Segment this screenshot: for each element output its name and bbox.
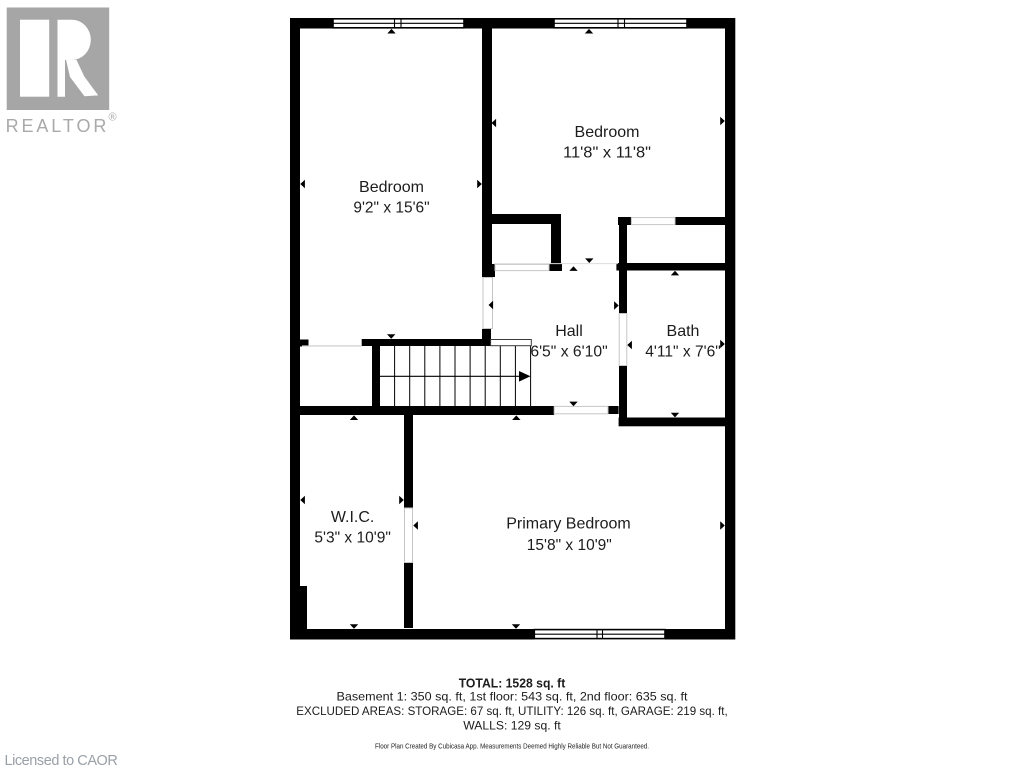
svg-text:Hall: Hall (555, 323, 583, 340)
svg-text:Licensed to CAOR: Licensed to CAOR (5, 753, 118, 768)
svg-text:Primary Bedroom: Primary Bedroom (506, 516, 630, 533)
svg-text:W.I.C.: W.I.C. (331, 509, 375, 526)
svg-text:4'11" x 7'6": 4'11" x 7'6" (645, 343, 721, 360)
svg-text:Basement 1: 350 sq. ft, 1st fl: Basement 1: 350 sq. ft, 1st floor: 543 s… (337, 690, 689, 704)
svg-text:WALLS: 129 sq. ft: WALLS: 129 sq. ft (463, 718, 561, 732)
svg-text:6'5" x 6'10": 6'5" x 6'10" (530, 343, 607, 360)
svg-text:Floor Plan Created By Cubicasa: Floor Plan Created By Cubicasa App. Meas… (375, 742, 649, 751)
svg-text:9'2" x 15'6": 9'2" x 15'6" (353, 200, 429, 217)
svg-text:11'8" x 11'8": 11'8" x 11'8" (563, 145, 651, 162)
svg-text:Bedroom: Bedroom (359, 179, 424, 196)
svg-text:EXCLUDED AREAS: STORAGE: 67 sq: EXCLUDED AREAS: STORAGE: 67 sq. ft, UTIL… (296, 704, 727, 718)
svg-text:Bedroom: Bedroom (575, 124, 640, 141)
svg-text:Bath: Bath (667, 323, 700, 340)
svg-text:REALTOR: REALTOR (6, 116, 110, 136)
svg-text:15'8" x 10'9": 15'8" x 10'9" (527, 537, 612, 554)
svg-text:5'3" x 10'9": 5'3" x 10'9" (314, 529, 391, 546)
svg-text:TOTAL: 1528 sq. ft: TOTAL: 1528 sq. ft (459, 676, 566, 690)
svg-text:®: ® (109, 111, 117, 123)
